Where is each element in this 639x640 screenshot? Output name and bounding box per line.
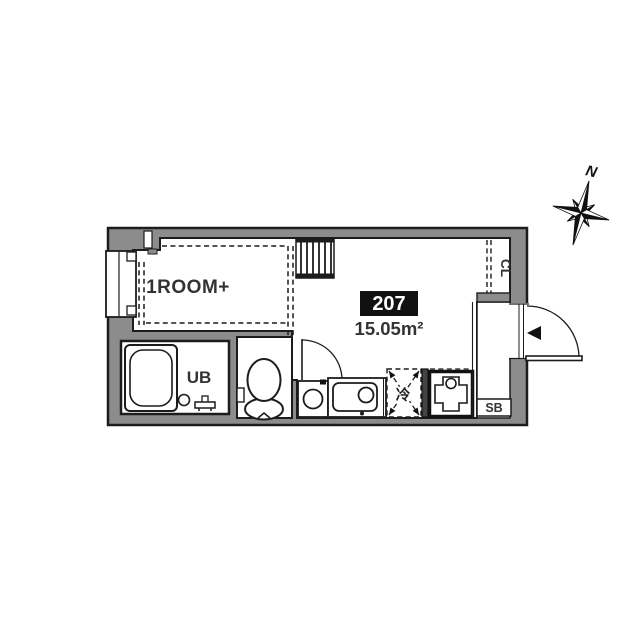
washbasin-icon — [430, 369, 473, 417]
closet-label: CL — [498, 259, 513, 277]
unit-bath-label: UB — [187, 368, 212, 387]
wall-slit — [144, 231, 152, 248]
shoe-box: SB — [477, 399, 511, 416]
refrigerator-label: 冷 — [396, 386, 411, 404]
wall-notch — [148, 249, 157, 254]
floor-area-label: 15.05m² — [355, 318, 424, 339]
kitchen-sink-icon — [328, 378, 386, 417]
stairs-icon — [296, 238, 334, 278]
shoe-box-label: SB — [485, 401, 502, 415]
bathtub-icon — [125, 345, 177, 411]
partition-wall — [422, 369, 428, 417]
floor-plan-page: 冷 SB CL 207 15.05m² 1ROOM+ UB — [0, 0, 639, 640]
window-icon — [106, 251, 136, 317]
unit-number-label: 207 — [372, 293, 405, 315]
floor-plan-drawing: 冷 SB CL 207 15.05m² 1ROOM+ UB — [0, 0, 639, 640]
bath-drain-icon — [179, 395, 190, 406]
room-type-label: 1ROOM+ — [146, 277, 230, 298]
washing-machine-icon — [298, 380, 328, 418]
